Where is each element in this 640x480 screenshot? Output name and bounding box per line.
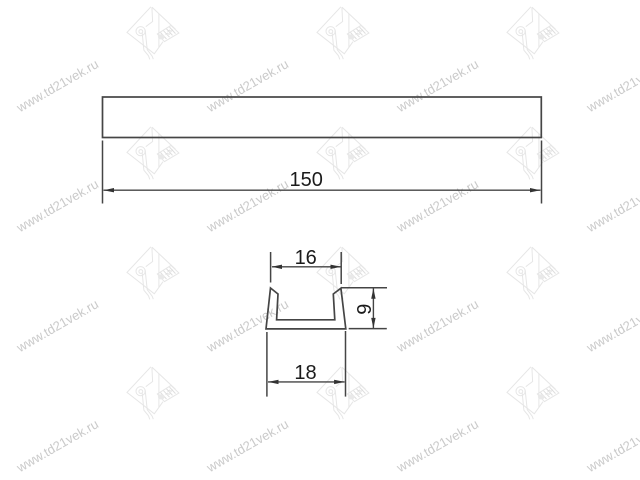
svg-text:18: 18 bbox=[294, 362, 316, 384]
svg-text:16: 16 bbox=[295, 247, 317, 269]
svg-text:9: 9 bbox=[354, 304, 376, 315]
svg-text:150: 150 bbox=[290, 169, 323, 191]
